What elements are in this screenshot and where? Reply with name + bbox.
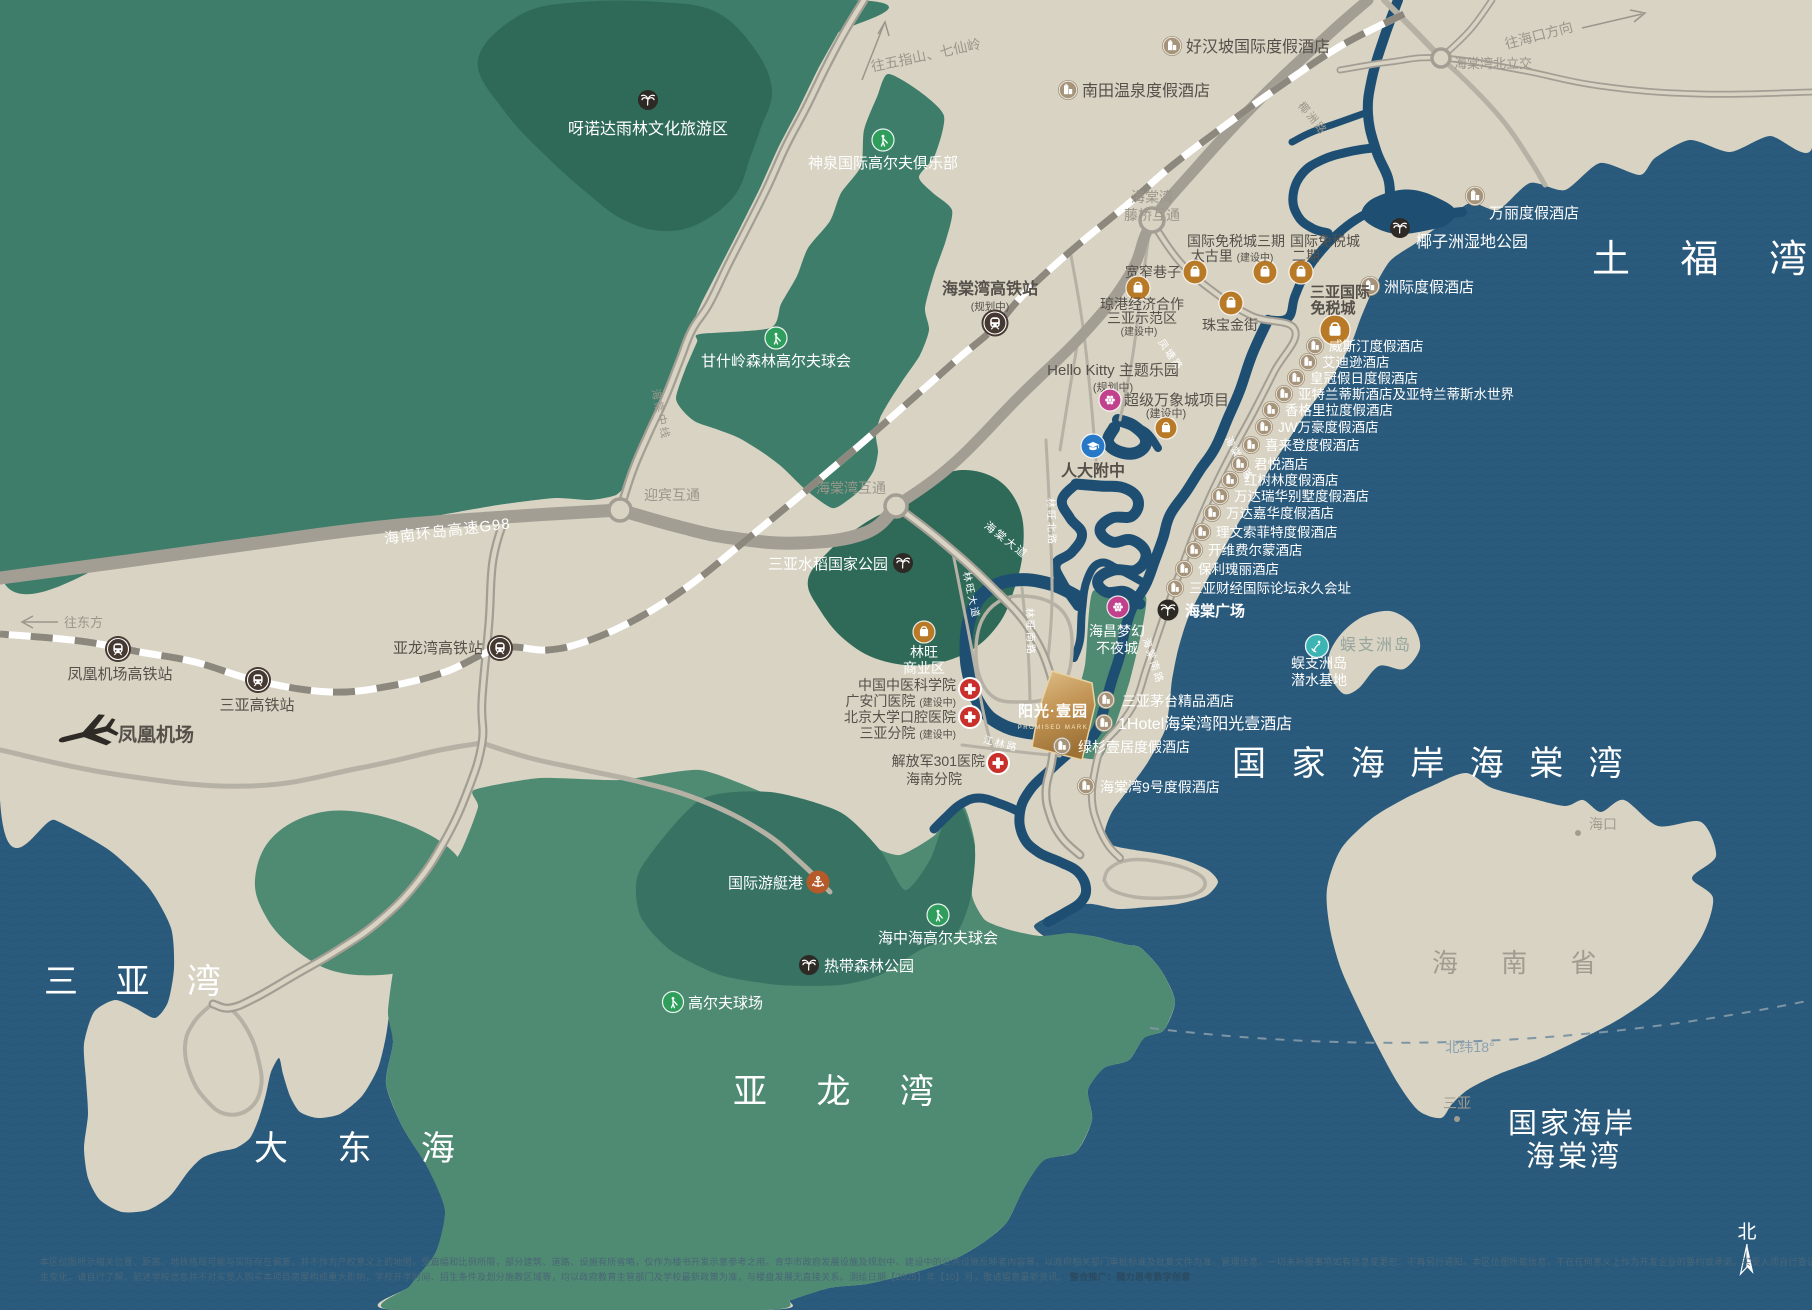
svg-text:国际游艇港: 国际游艇港 [728, 875, 803, 892]
svg-text:本区位图所示相关位置、距离、地铁格局可能与实际存在偏差，并不: 本区位图所示相关位置、距离、地铁格局可能与实际存在偏差，并不作为产权意义上的地图… [40, 1256, 1812, 1267]
svg-text:南田温泉度假酒店: 南田温泉度假酒店 [1082, 82, 1210, 100]
svg-text:Hello Kitty 主题乐园: Hello Kitty 主题乐园 [1047, 362, 1179, 379]
svg-text:国际免税城: 国际免税城 [1290, 233, 1360, 249]
svg-text:高尔夫球场: 高尔夫球场 [688, 995, 763, 1012]
svg-text:JW万豪度假酒店: JW万豪度假酒店 [1278, 420, 1379, 435]
svg-text:君悦酒店: 君悦酒店 [1254, 457, 1308, 472]
svg-text:万达嘉华度假酒店: 万达嘉华度假酒店 [1226, 506, 1334, 521]
svg-text:三 亚 湾: 三 亚 湾 [44, 963, 235, 1001]
svg-text:海棠湾: 海棠湾 [1526, 1140, 1622, 1173]
svg-text:北纬18°: 北纬18° [1445, 1039, 1494, 1055]
svg-text:(建设中): (建设中) [1121, 325, 1158, 338]
svg-text:国 家 海 岸 海 棠 湾: 国 家 海 岸 海 棠 湾 [1232, 745, 1631, 783]
svg-text:洲际度假酒店: 洲际度假酒店 [1384, 279, 1474, 296]
svg-text:威斯汀度假酒店: 威斯汀度假酒店 [1329, 339, 1424, 354]
svg-text:北: 北 [1737, 1221, 1756, 1243]
svg-text:土 福 湾: 土 福 湾 [1592, 239, 1812, 281]
svg-text:大 东 海: 大 东 海 [254, 1130, 475, 1168]
svg-text:三亚茅台精品酒店: 三亚茅台精品酒店 [1122, 693, 1234, 709]
svg-text:二期: 二期 [1292, 248, 1320, 264]
svg-text:理文索菲特度假酒店: 理文索菲特度假酒店 [1216, 525, 1338, 540]
svg-text:亚 龙 湾: 亚 龙 湾 [733, 1073, 954, 1111]
svg-text:往东方: 往东方 [64, 615, 103, 630]
svg-text:国家海岸: 国家海岸 [1508, 1107, 1636, 1140]
svg-text:亚特兰蒂斯酒店及亚特兰蒂斯水世界: 亚特兰蒂斯酒店及亚特兰蒂斯水世界 [1298, 387, 1514, 402]
svg-text:香格里拉度假酒店: 香格里拉度假酒店 [1285, 403, 1393, 418]
svg-text:三亚国际: 三亚国际 [1310, 284, 1370, 301]
svg-text:海棠湾9号度假酒店: 海棠湾9号度假酒店 [1100, 779, 1220, 795]
svg-text:热带森林公园: 热带森林公园 [824, 958, 914, 975]
svg-text:喜来登度假酒店: 喜来登度假酒店 [1265, 438, 1360, 453]
svg-text:海棠湾: 海棠湾 [1131, 189, 1173, 205]
svg-text:万丽度假酒店: 万丽度假酒店 [1489, 205, 1579, 222]
svg-text:椰子洲湿地公园: 椰子洲湿地公园 [1416, 233, 1528, 251]
svg-text:海棠广场: 海棠广场 [1185, 602, 1245, 620]
svg-text:海棠湾高铁站: 海棠湾高铁站 [942, 279, 1038, 298]
svg-text:1Hotel海棠湾阳光壹酒店: 1Hotel海棠湾阳光壹酒店 [1118, 715, 1292, 733]
svg-text:三亚财经国际论坛永久会址: 三亚财经国际论坛永久会址 [1189, 581, 1351, 596]
svg-text:中国中医科学院: 中国中医科学院 [858, 677, 956, 693]
svg-text:甘什岭森林高尔夫球会: 甘什岭森林高尔夫球会 [701, 353, 851, 370]
svg-text:凤凰机场高铁站: 凤凰机场高铁站 [67, 666, 172, 683]
svg-text:保利瑰丽酒店: 保利瑰丽酒店 [1198, 562, 1279, 577]
svg-text:珠宝金街: 珠宝金街 [1202, 317, 1258, 333]
svg-text:解放军301医院: 解放军301医院 [892, 753, 985, 769]
svg-text:海 南 省: 海 南 省 [1432, 948, 1614, 978]
svg-text:海南分院: 海南分院 [906, 771, 962, 787]
svg-text:(规划中): (规划中) [971, 300, 1010, 313]
svg-text:藤桥互通: 藤桥互通 [1124, 207, 1180, 223]
svg-text:好汉坡国际度假酒店: 好汉坡国际度假酒店 [1186, 38, 1330, 56]
svg-text:凤凰机场: 凤凰机场 [118, 724, 194, 746]
svg-text:红树林度假酒店: 红树林度假酒店 [1244, 473, 1339, 488]
svg-text:三亚示范区: 三亚示范区 [1107, 310, 1177, 326]
svg-text:三亚: 三亚 [1443, 1095, 1471, 1111]
svg-text:海口: 海口 [1589, 816, 1617, 832]
svg-text:亚龙湾高铁站: 亚龙湾高铁站 [393, 640, 483, 657]
svg-text:三亚高铁站: 三亚高铁站 [219, 697, 294, 714]
svg-text:海棠湾互通: 海棠湾互通 [816, 480, 886, 496]
svg-text:超级万象城项目: 超级万象城项目 [1124, 392, 1229, 409]
svg-text:海棠湾北立交: 海棠湾北立交 [1454, 56, 1532, 71]
svg-text:三亚水稻国家公园: 三亚水稻国家公园 [768, 556, 888, 573]
svg-text:潜水基地: 潜水基地 [1291, 672, 1347, 688]
svg-text:蜈支洲岛: 蜈支洲岛 [1291, 655, 1347, 671]
svg-text:免税城: 免税城 [1310, 299, 1355, 317]
svg-text:海中海高尔夫球会: 海中海高尔夫球会 [878, 930, 998, 947]
svg-text:蜈支洲岛: 蜈支洲岛 [1340, 636, 1412, 654]
svg-text:不夜城: 不夜城 [1096, 640, 1138, 656]
svg-text:国际免税城三期: 国际免税城三期 [1187, 233, 1285, 249]
svg-text:人大附中: 人大附中 [1061, 461, 1125, 480]
svg-text:开维费尔蒙酒店: 开维费尔蒙酒店 [1208, 543, 1303, 558]
svg-text:艾迪逊酒店: 艾迪逊酒店 [1322, 355, 1390, 370]
svg-text:PROMISED MARK: PROMISED MARK [1018, 725, 1089, 731]
svg-text:北京大学口腔医院: 北京大学口腔医院 [844, 709, 956, 725]
svg-text:生变化，请自行了解。前述学校信息并不对买受人购买本项目房屋构: 生变化，请自行了解。前述学校信息并不对买受人购买本项目房屋构成重大影响，学校开学… [40, 1271, 1191, 1282]
svg-text:海昌梦幻: 海昌梦幻 [1089, 623, 1145, 639]
svg-text:皇冠假日度假酒店: 皇冠假日度假酒店 [1310, 371, 1418, 386]
svg-text:万达瑞华别墅度假酒店: 万达瑞华别墅度假酒店 [1234, 489, 1369, 504]
svg-text:呀诺达雨林文化旅游区: 呀诺达雨林文化旅游区 [568, 120, 728, 138]
svg-text:阳光·壹园: 阳光·壹园 [1018, 702, 1088, 720]
svg-text:迎宾互通: 迎宾互通 [644, 487, 700, 503]
svg-text:绿杉壹居度假酒店: 绿杉壹居度假酒店 [1078, 739, 1190, 755]
svg-text:神泉国际高尔夫俱乐部: 神泉国际高尔夫俱乐部 [808, 155, 958, 172]
svg-text:林旺: 林旺 [910, 644, 938, 660]
svg-text:商业区: 商业区 [903, 660, 945, 676]
